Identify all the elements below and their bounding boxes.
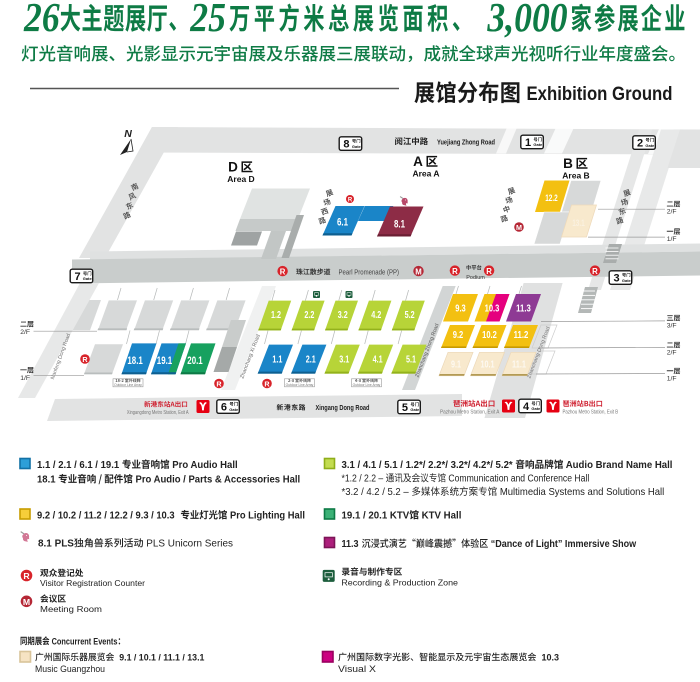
svg-text:Pro Lighting Hall: Pro Lighting Hall [227, 510, 305, 521]
svg-text:8.1: 8.1 [394, 218, 405, 230]
svg-text:N: N [124, 128, 132, 140]
svg-text:5.2: 5.2 [405, 310, 415, 321]
svg-text:3/F: 3/F [667, 323, 677, 330]
svg-text:R: R [264, 380, 270, 389]
svg-text:M: M [23, 597, 30, 607]
svg-text:4.1: 4.1 [373, 355, 383, 366]
svg-text:9.3: 9.3 [455, 303, 466, 315]
svg-text:7: 7 [74, 271, 80, 283]
svg-text:13.1: 13.1 [572, 218, 585, 228]
svg-text:1.1: 1.1 [272, 355, 282, 366]
svg-text:25: 25 [189, 0, 226, 41]
svg-text:Visitor Registration Counter: Visitor Registration Counter [40, 578, 145, 588]
svg-text:Gate: Gate [622, 278, 632, 283]
svg-text:/ 4.2: / 4.2 [468, 460, 487, 471]
svg-text:Gate: Gate [531, 406, 541, 411]
svg-text:8.1 PLS: 8.1 PLS [38, 538, 74, 549]
svg-text:R: R [348, 198, 353, 204]
svg-text:2/F: 2/F [667, 209, 677, 216]
svg-text:12.2: 12.2 [545, 193, 558, 203]
svg-text:/ 2.2: / 2.2 [423, 460, 442, 471]
svg-text:3.1 / 4.1 / 5.1 / 1.2: 3.1 / 4.1 / 5.1 / 1.2 [342, 460, 420, 471]
svg-text:R: R [452, 267, 458, 276]
svg-text:Gate: Gate [533, 142, 543, 147]
svg-text:3: 3 [613, 273, 619, 285]
svg-text:R: R [486, 267, 492, 276]
svg-text:*3.2 / 4.2 / 5.2 –: *3.2 / 4.2 / 5.2 – [342, 487, 412, 498]
svg-text:10.2: 10.2 [482, 329, 497, 341]
svg-text:4: 4 [523, 401, 530, 413]
svg-text:Gate: Gate [83, 276, 93, 281]
svg-text:Multimedia Systems and Solutio: Multimedia Systems and Solutions Hall [497, 487, 664, 498]
svg-text:Outdoor Line Array: Outdoor Line Array [114, 383, 142, 387]
svg-text:Area D: Area D [227, 174, 254, 184]
svg-text:1.2: 1.2 [271, 310, 281, 321]
svg-text:6: 6 [221, 402, 227, 414]
svg-text:4.2: 4.2 [371, 310, 381, 321]
svg-text:5: 5 [402, 402, 408, 414]
svg-text:19.1: 19.1 [157, 355, 172, 367]
svg-text:B: B [563, 156, 573, 171]
svg-text:11.1: 11.1 [512, 360, 526, 371]
svg-text:R: R [23, 571, 30, 581]
svg-text:M: M [516, 223, 522, 232]
svg-text:Outdoor Line Array: Outdoor Line Array [353, 383, 381, 387]
svg-text:Music Guangzhou: Music Guangzhou [35, 664, 105, 674]
svg-text:1/F: 1/F [667, 236, 677, 243]
svg-text:Meeting Room: Meeting Room [40, 604, 102, 614]
svg-text:Gate: Gate [352, 144, 362, 149]
svg-text:Gate: Gate [410, 407, 420, 412]
svg-text:9.1 / 10.1 / 11.1 / 13.1: 9.1 / 10.1 / 11.1 / 13.1 [114, 652, 204, 662]
svg-text:5.1: 5.1 [406, 355, 416, 366]
svg-text:10.1: 10.1 [481, 360, 495, 371]
svg-text:8: 8 [343, 139, 349, 151]
svg-text:3.2: 3.2 [338, 310, 348, 321]
svg-text:3,000: 3,000 [486, 0, 567, 41]
svg-text:2: 2 [637, 138, 643, 150]
svg-text:“Dance of Light” Immersive Sho: “Dance of Light” Immersive Show [488, 539, 637, 551]
svg-text:Visual X: Visual X [338, 664, 376, 674]
svg-text:Pro Audio / Parts & Accessorie: Pro Audio / Parts & Accessories Hall [133, 474, 301, 485]
svg-text:M: M [415, 267, 422, 276]
svg-text:18.1: 18.1 [37, 474, 58, 485]
svg-text:*1.2 / 2.2 –: *1.2 / 2.2 – [342, 473, 386, 484]
svg-text:6.1: 6.1 [337, 217, 348, 229]
svg-text:2/F: 2/F [20, 329, 30, 336]
svg-text:Audio Brand Name Hall: Audio Brand Name Hall [563, 460, 672, 471]
svg-text:Area B: Area B [562, 171, 589, 181]
svg-text:Podium: Podium [466, 275, 485, 281]
svg-text:Recording & Production Zone: Recording & Production Zone [341, 577, 458, 587]
svg-text:11.3: 11.3 [342, 539, 362, 551]
svg-text:Pazhou Metro Station, Exit A: Pazhou Metro Station, Exit A [440, 410, 500, 416]
svg-text:Outdoor Line Array: Outdoor Line Array [286, 383, 314, 387]
svg-text:Xingangdong Metro Station, Exi: Xingangdong Metro Station, Exit A [127, 410, 189, 416]
svg-text:1.1 / 2.1 / 6.1 / 19.1: 1.1 / 2.1 / 6.1 / 19.1 [37, 460, 122, 471]
svg-text:9.1: 9.1 [451, 360, 461, 371]
svg-text:R: R [82, 355, 88, 364]
svg-text:D: D [228, 160, 238, 175]
svg-text:A: A [413, 154, 423, 169]
svg-text:PLS Unicorn Series: PLS Unicorn Series [143, 538, 233, 549]
svg-text:Yuejiang Zhong Road: Yuejiang Zhong Road [437, 137, 495, 146]
svg-text:9.2 / 10.2 / 11.2 / 12.2 / 9.3: 9.2 / 10.2 / 11.2 / 12.2 / 9.3 / 10.3 [37, 510, 180, 521]
svg-text:2.1: 2.1 [306, 355, 316, 366]
svg-text:10.3: 10.3 [536, 652, 559, 662]
svg-text:Gate: Gate [229, 407, 239, 412]
svg-text:1/F: 1/F [20, 375, 30, 382]
svg-text:18.1: 18.1 [127, 355, 142, 367]
svg-text:R: R [592, 267, 598, 276]
svg-text:Concurrent Events: Concurrent Events [50, 635, 118, 646]
svg-text:11.2: 11.2 [514, 329, 529, 341]
svg-text:10.3: 10.3 [485, 303, 500, 315]
svg-text:Exhibition Ground: Exhibition Ground [527, 84, 673, 105]
svg-text:19.1 / 20.1 KTV: 19.1 / 20.1 KTV [342, 510, 410, 521]
svg-text:9.2: 9.2 [453, 329, 464, 341]
svg-text:Pro Audio Hall: Pro Audio Hall [170, 460, 238, 471]
svg-text:1: 1 [525, 137, 531, 149]
svg-text:Xingang Dong Road: Xingang Dong Road [316, 403, 370, 412]
svg-text:KTV Hall: KTV Hall [419, 510, 462, 521]
svg-text:/ 5.2: / 5.2 [490, 460, 509, 471]
svg-text:Gate: Gate [645, 143, 655, 148]
svg-text:*: * [509, 460, 515, 471]
svg-text:2/F: 2/F [667, 350, 677, 357]
svg-text:R: R [280, 267, 286, 276]
svg-text:Pazhou Metro Station, Exit B: Pazhou Metro Station, Exit B [563, 410, 619, 416]
svg-text:/ 3.2: / 3.2 [445, 460, 464, 471]
svg-text:Communication and Conference H: Communication and Conference Hall [446, 473, 589, 484]
svg-text:20.1: 20.1 [187, 355, 202, 367]
svg-text:Area A: Area A [412, 169, 439, 179]
svg-text:1/F: 1/F [667, 376, 677, 383]
svg-text:R: R [216, 380, 222, 389]
svg-text:26: 26 [23, 0, 60, 41]
svg-text:Pearl Promenade (PP): Pearl Promenade (PP) [339, 269, 400, 276]
svg-text:3.1: 3.1 [339, 355, 349, 366]
svg-text:2.2: 2.2 [304, 310, 314, 321]
svg-text:11.3: 11.3 [516, 303, 531, 315]
